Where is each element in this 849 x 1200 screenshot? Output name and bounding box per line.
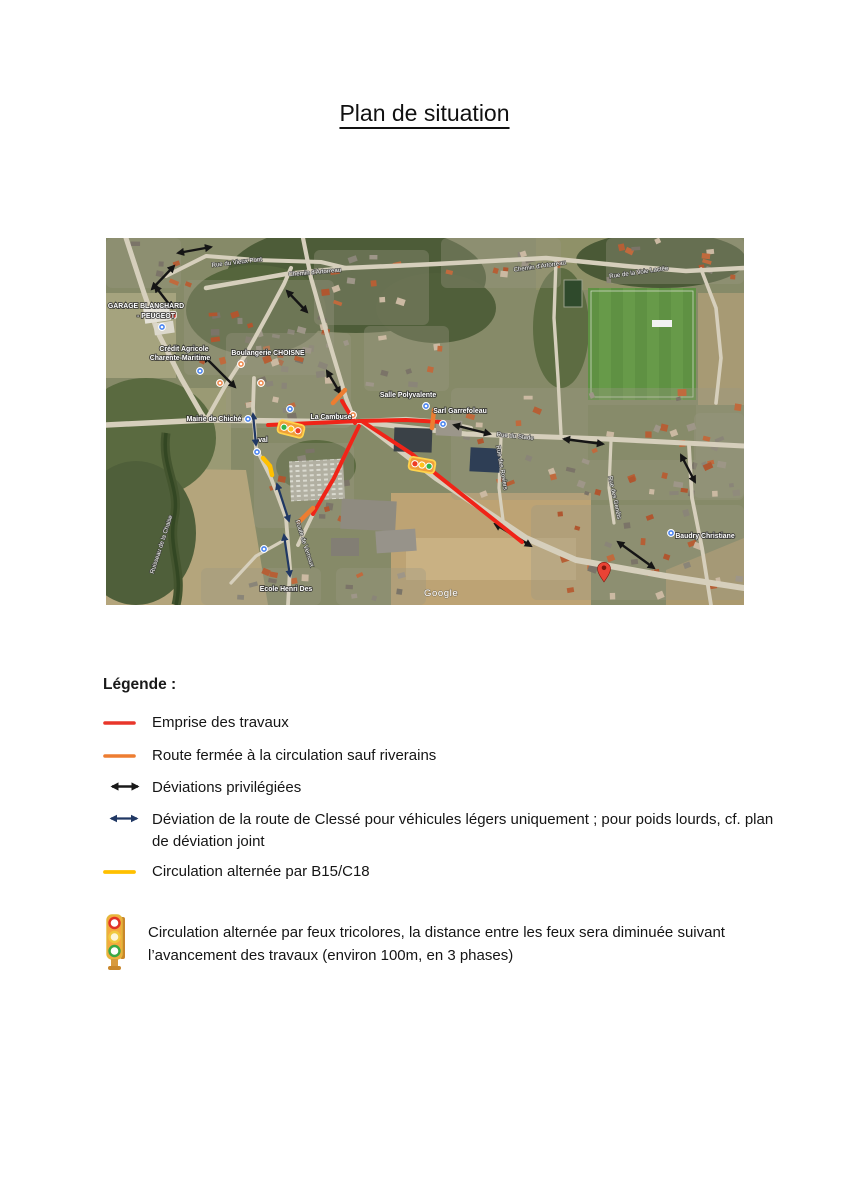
house (281, 383, 286, 389)
house (702, 253, 711, 259)
house (237, 318, 242, 324)
blue-double-arrow-icon (103, 809, 152, 830)
poi-glyph (425, 405, 428, 408)
house (159, 261, 164, 266)
house (316, 371, 325, 378)
house (678, 389, 687, 396)
house (730, 275, 735, 280)
page-title-text: Plan de situation (339, 100, 509, 126)
map-label: GARAGE BLANCHARD (108, 303, 184, 310)
house (500, 271, 508, 278)
legend-item-closed-road: Route fermée à la circulation sauf river… (103, 745, 436, 767)
map-label: Sarl Garrefoleau (433, 408, 487, 415)
traffic-light-lamp (411, 460, 418, 467)
map-label: Salle Polyvalente (380, 392, 436, 399)
legend-label: Emprise des travaux (152, 712, 289, 734)
red-line-icon (103, 712, 152, 733)
yellow-line-icon (103, 861, 152, 882)
map-label: Charente-Maritime (150, 355, 211, 362)
poi-glyph (289, 408, 292, 411)
house (631, 559, 638, 565)
house (237, 595, 244, 600)
orange-line-icon (103, 745, 152, 766)
legend-label: Circulation alternée par B15/C18 (152, 861, 370, 883)
house (623, 522, 630, 529)
poi-glyph (256, 451, 259, 454)
house (476, 422, 483, 427)
poi-glyph (240, 363, 243, 366)
house (645, 431, 651, 437)
poi-glyph (352, 414, 355, 417)
legend-item-alternating: Circulation alternée par B15/C18 (103, 861, 370, 883)
poi-glyph (670, 532, 673, 535)
house (735, 576, 743, 583)
map-label: Baudry Christiane (675, 533, 735, 540)
house (610, 593, 616, 600)
house (321, 289, 330, 296)
house (649, 489, 655, 495)
poi-glyph (161, 326, 164, 329)
house (640, 538, 645, 545)
situation-map: GARAGE BLANCHARD- PEUGEOTCrédit Agricole… (106, 238, 744, 605)
location-pin-dot (602, 566, 607, 571)
house (319, 514, 326, 519)
house (734, 403, 741, 411)
black-double-arrow-icon (103, 777, 152, 798)
poi-glyph (199, 370, 202, 373)
poi-glyph (219, 382, 222, 385)
traffic-light-lamp (418, 461, 425, 468)
poi-glyph (442, 423, 445, 426)
house (345, 585, 353, 590)
legend-item-deviation-vl: Déviation de la route de Clessé pour véh… (103, 809, 783, 853)
house (729, 483, 734, 488)
house (131, 242, 140, 247)
map-label: - PEUGEOT (137, 313, 176, 320)
house (209, 312, 218, 316)
map-label: val (258, 437, 268, 444)
urban-ground (364, 326, 449, 391)
house (557, 511, 563, 516)
works-line (360, 420, 442, 422)
poi-glyph (263, 548, 266, 551)
legend-heading: Légende : (103, 676, 176, 694)
poi-glyph (260, 382, 263, 385)
house (351, 593, 357, 598)
cemetery (289, 459, 345, 502)
house (396, 589, 402, 595)
legend-item-works: Emprise des travaux (103, 712, 289, 734)
house (516, 420, 522, 426)
house (347, 277, 356, 284)
house (408, 381, 418, 387)
map-label: Crédit Agricole (159, 346, 208, 353)
house (524, 396, 533, 400)
legend-item-deviations: Déviations privilégiées (103, 777, 301, 799)
house (712, 491, 718, 497)
house (301, 574, 308, 581)
traffic-light-icon (103, 913, 148, 976)
legend-label: Route fermée à la circulation sauf river… (152, 745, 436, 767)
house (291, 577, 298, 584)
urban-ground (694, 413, 744, 498)
map-label: Ecole Henri Des (260, 586, 313, 593)
house (379, 297, 385, 303)
legend-item-traffic-light: Circulation alternée par feux tricolores… (103, 913, 773, 976)
house (631, 246, 640, 250)
legend-label: Déviations privilégiées (152, 777, 301, 799)
legend-label: Circulation alternée par feux tricolores… (148, 913, 773, 967)
house (211, 329, 220, 336)
map-label: La Cambuse (311, 414, 352, 421)
google-watermark: Google (424, 588, 458, 599)
house (669, 491, 678, 495)
urban-ground (314, 250, 429, 325)
house (371, 280, 377, 287)
page-title: Plan de situation (0, 100, 849, 127)
document-page: Plan de situation (0, 0, 849, 1200)
house (369, 255, 377, 260)
legend-label: Déviation de la route de Clessé pour véh… (152, 809, 783, 853)
traffic-light-lamp (425, 463, 432, 470)
satellite-map: GARAGE BLANCHARD- PEUGEOTCrédit Agricole… (106, 238, 744, 605)
house (437, 346, 442, 352)
map-label: Mairie de Chiché (187, 416, 242, 423)
poi-glyph (247, 418, 250, 421)
map-label: Boulangerie CHOISNE (231, 350, 305, 357)
